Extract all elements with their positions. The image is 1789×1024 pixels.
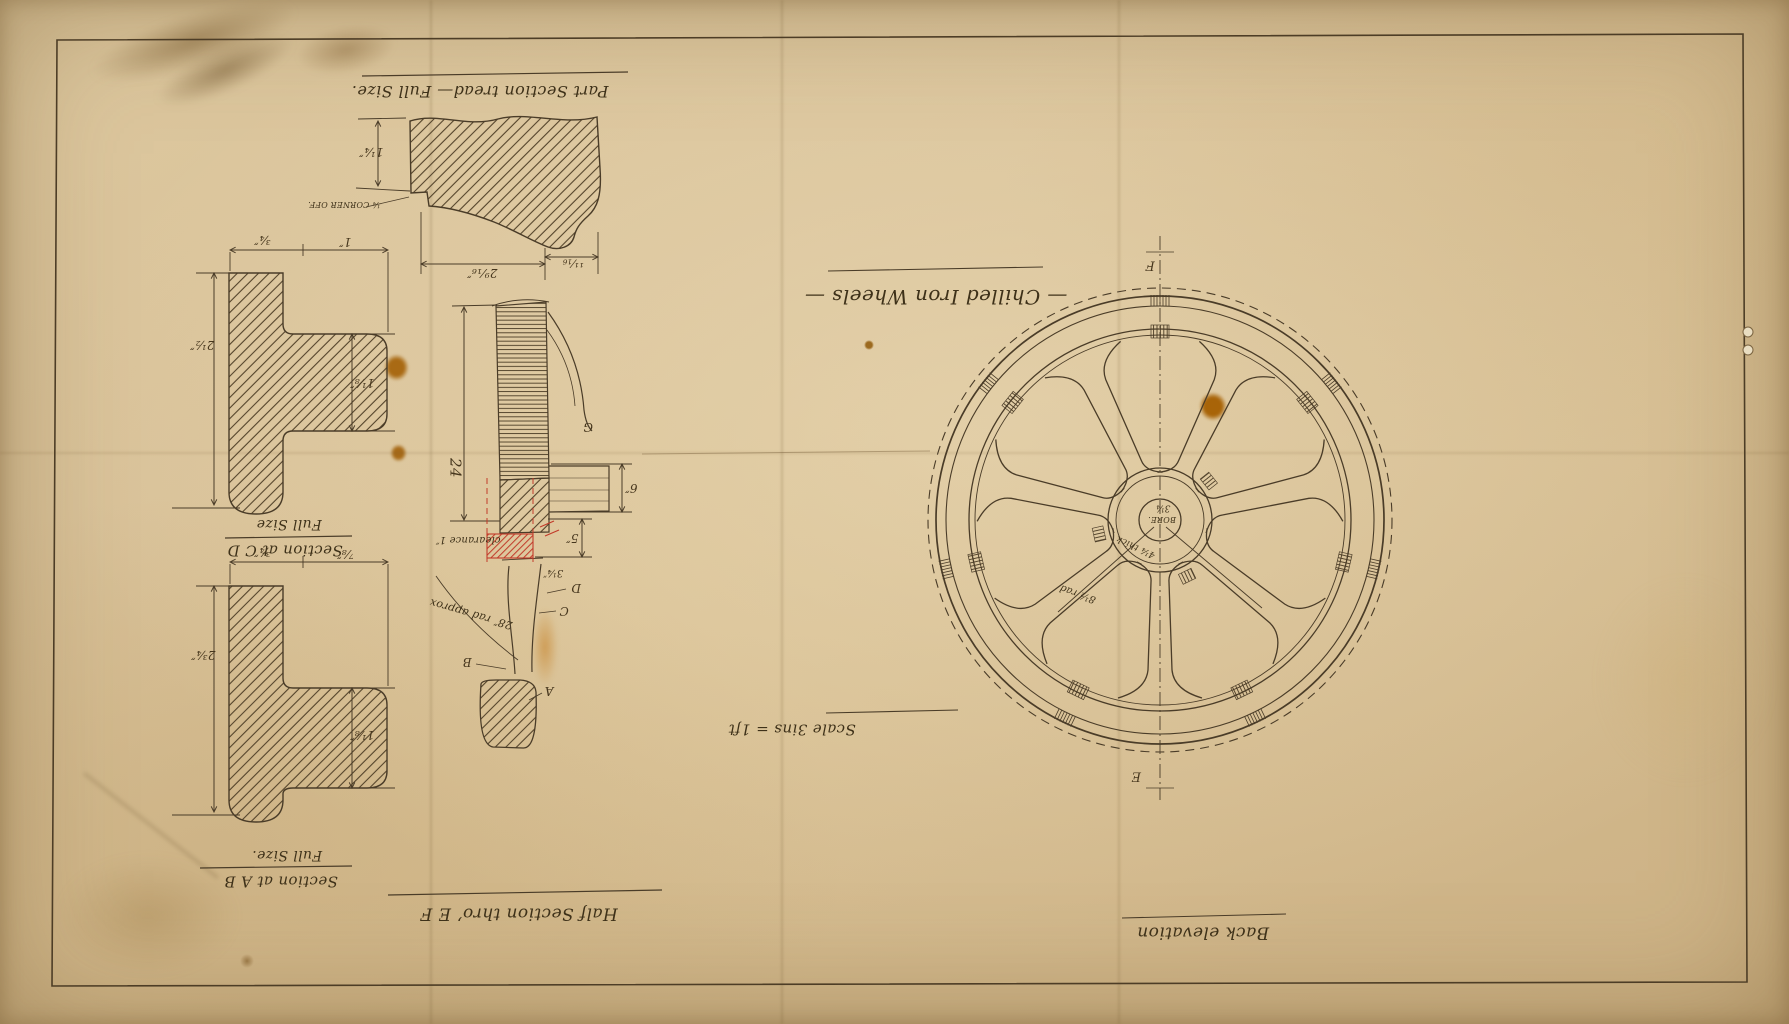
half-section-caption: Half Section thro’ E F <box>420 905 618 922</box>
cd-caption: Section at C D <box>227 543 342 558</box>
ab-caption: Section at A B <box>224 874 338 889</box>
sheet-title: — Chilled Iron Wheels — <box>805 287 1068 307</box>
wheel-marker-e: E <box>1131 770 1141 783</box>
drawing-linework <box>0 0 1789 1024</box>
hs-letter-a: A <box>544 685 553 697</box>
hs-letter-d: D <box>571 582 581 594</box>
cd-top-left-dim-label: ¾″ <box>254 234 271 246</box>
caption-rules <box>826 267 1286 918</box>
cd-inner-dim-label: 1⅛″ <box>350 377 375 389</box>
half-section-view <box>388 300 930 895</box>
ab-left-dim-label: 2¾″ <box>191 649 216 661</box>
hs-letter-c: C <box>559 605 569 617</box>
hs-six-dim-label: 6″ <box>625 482 638 494</box>
tread-caption: Part Section tread— Full Size. <box>352 83 609 99</box>
wheel-bore-word: BORE. <box>1148 515 1176 523</box>
section-cd-shape <box>229 273 387 514</box>
tread-width-left-dim-label: 2⁹⁄₁₆″ <box>467 267 498 279</box>
half-section-rim-block <box>500 478 549 533</box>
scale-note: Scale 3ins = 1ft <box>728 722 855 737</box>
tread-height-dim-label: 1¼″ <box>359 146 384 158</box>
half-section-hub <box>480 680 536 748</box>
half-section-spoke-right <box>532 564 541 672</box>
section-cd-view <box>172 244 395 538</box>
hs-letter-g: G <box>583 421 593 433</box>
half-section-tread-strip <box>496 302 549 480</box>
hs-bore-dim-label: 3¼″ <box>543 567 563 577</box>
ab-top-right-dim-label: ⅞″ <box>337 548 354 560</box>
ab-inner-dim-label: 1⅛″ <box>350 729 375 741</box>
border-frame <box>52 34 1747 986</box>
cd-caption-sub: Full Size <box>256 517 321 531</box>
half-section-face-curve <box>548 312 592 431</box>
hs-clearance-note: clearance 1″ <box>435 534 500 544</box>
tread-section-shape <box>410 117 600 249</box>
hs-depth-dim-label: 24 <box>448 458 463 478</box>
wheel-bore-value: 3¼ <box>1156 503 1171 512</box>
back-elevation-caption: Back elevation <box>1137 924 1269 941</box>
ab-top-left-dim-label: ¾″ <box>254 546 271 558</box>
tread-corner-note: ¼ CORNER OFF. <box>308 200 380 208</box>
section-ab-shape <box>229 586 387 822</box>
ab-caption-sub: Full Size. <box>252 848 322 862</box>
drawing-sheet: Part Section tread— Full Size. 1¼″ ¼ COR… <box>0 0 1789 1024</box>
tread-view <box>356 72 628 280</box>
cd-left-dim-label: 2½″ <box>190 339 215 351</box>
tread-width-right-dim-label: ¹¹⁄₁₆ <box>562 258 583 269</box>
cd-top-right-dim-label: 1″ <box>339 236 352 248</box>
hs-letter-b: B <box>462 656 471 668</box>
hs-five-dim-label: 5″ <box>566 532 579 544</box>
wheel-marker-f: F <box>1145 259 1154 272</box>
half-section-boss <box>549 466 609 512</box>
section-ab-view <box>172 556 395 868</box>
